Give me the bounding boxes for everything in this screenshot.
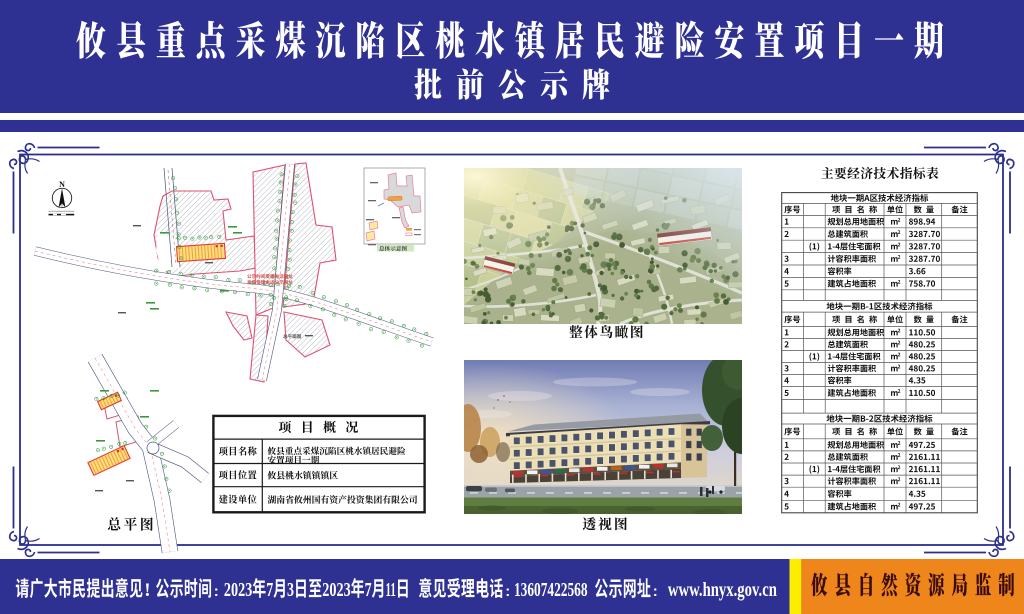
svg-text::: : <box>214 583 219 600</box>
svg-text::: : <box>505 583 510 600</box>
svg-text:2023: 2023 <box>224 580 253 601</box>
svg-text:7: 7 <box>266 580 273 601</box>
svg-text:www.hnyx.gov.cn: www.hnyx.gov.cn <box>668 580 777 601</box>
svg-text:!: ! <box>144 580 150 601</box>
svg-text:11: 11 <box>386 580 396 601</box>
svg-text::: : <box>653 583 658 600</box>
svg-text:13607422568: 13607422568 <box>514 580 588 601</box>
svg-text:3: 3 <box>287 580 294 601</box>
svg-text:N: N <box>59 180 65 189</box>
svg-text:2023: 2023 <box>322 580 351 601</box>
svg-text:7: 7 <box>365 580 372 601</box>
